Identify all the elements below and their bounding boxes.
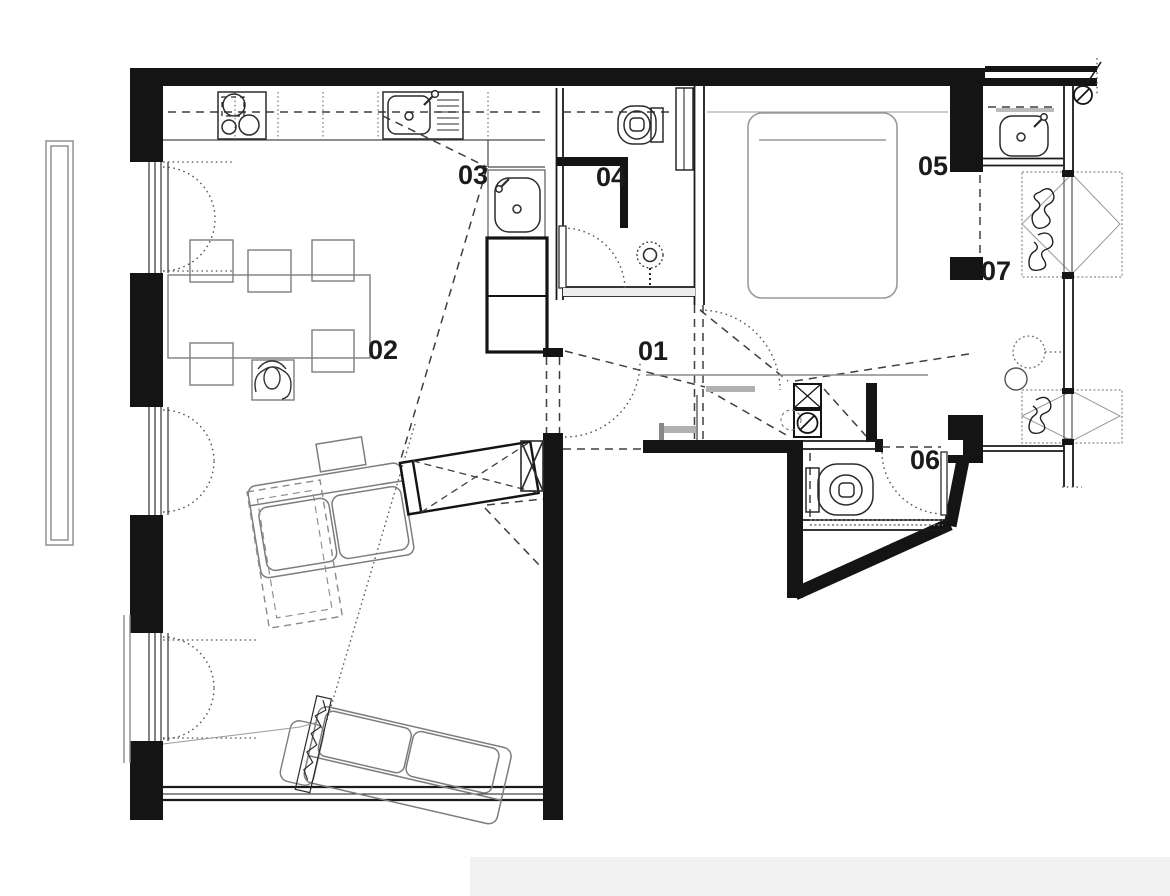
hall-bench [659, 423, 664, 440]
room-label-kitchen: 03 [458, 162, 488, 189]
paper-background [0, 0, 1170, 896]
room-label-wc: 06 [910, 447, 940, 474]
floor-plan-drawing [0, 0, 1170, 896]
room-label-dressing: 07 [981, 258, 1011, 285]
room-label-bathroom: 04 [596, 164, 626, 191]
room-label-bedroom: 05 [918, 153, 948, 180]
shower-base [563, 288, 695, 296]
wc-door-leaf [941, 452, 947, 515]
bathroom-door-leaf [559, 226, 566, 288]
room-label-corridor: 01 [638, 338, 668, 365]
scan-shadow [470, 857, 1170, 896]
room-label-living: 02 [368, 337, 398, 364]
floor-plan-page: 01 02 03 04 05 06 07 [0, 0, 1170, 896]
